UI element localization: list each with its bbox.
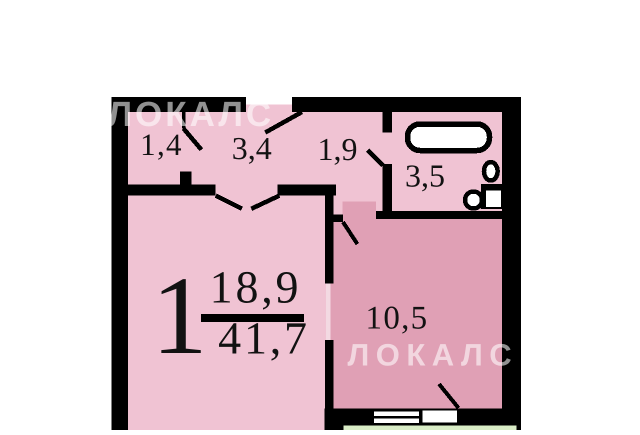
svg-text:41,7: 41,7	[218, 313, 310, 364]
svg-text:10,5: 10,5	[366, 301, 429, 337]
svg-text:3,5: 3,5	[405, 158, 445, 194]
svg-text:3,4: 3,4	[232, 130, 272, 166]
svg-text:ЛОКАЛС: ЛОКАЛС	[348, 338, 519, 373]
svg-text:1,9: 1,9	[318, 131, 358, 167]
svg-text:18,9: 18,9	[210, 262, 302, 313]
svg-text:1: 1	[152, 254, 208, 378]
svg-text:ЛОКАЛС: ЛОКАЛС	[108, 95, 275, 134]
